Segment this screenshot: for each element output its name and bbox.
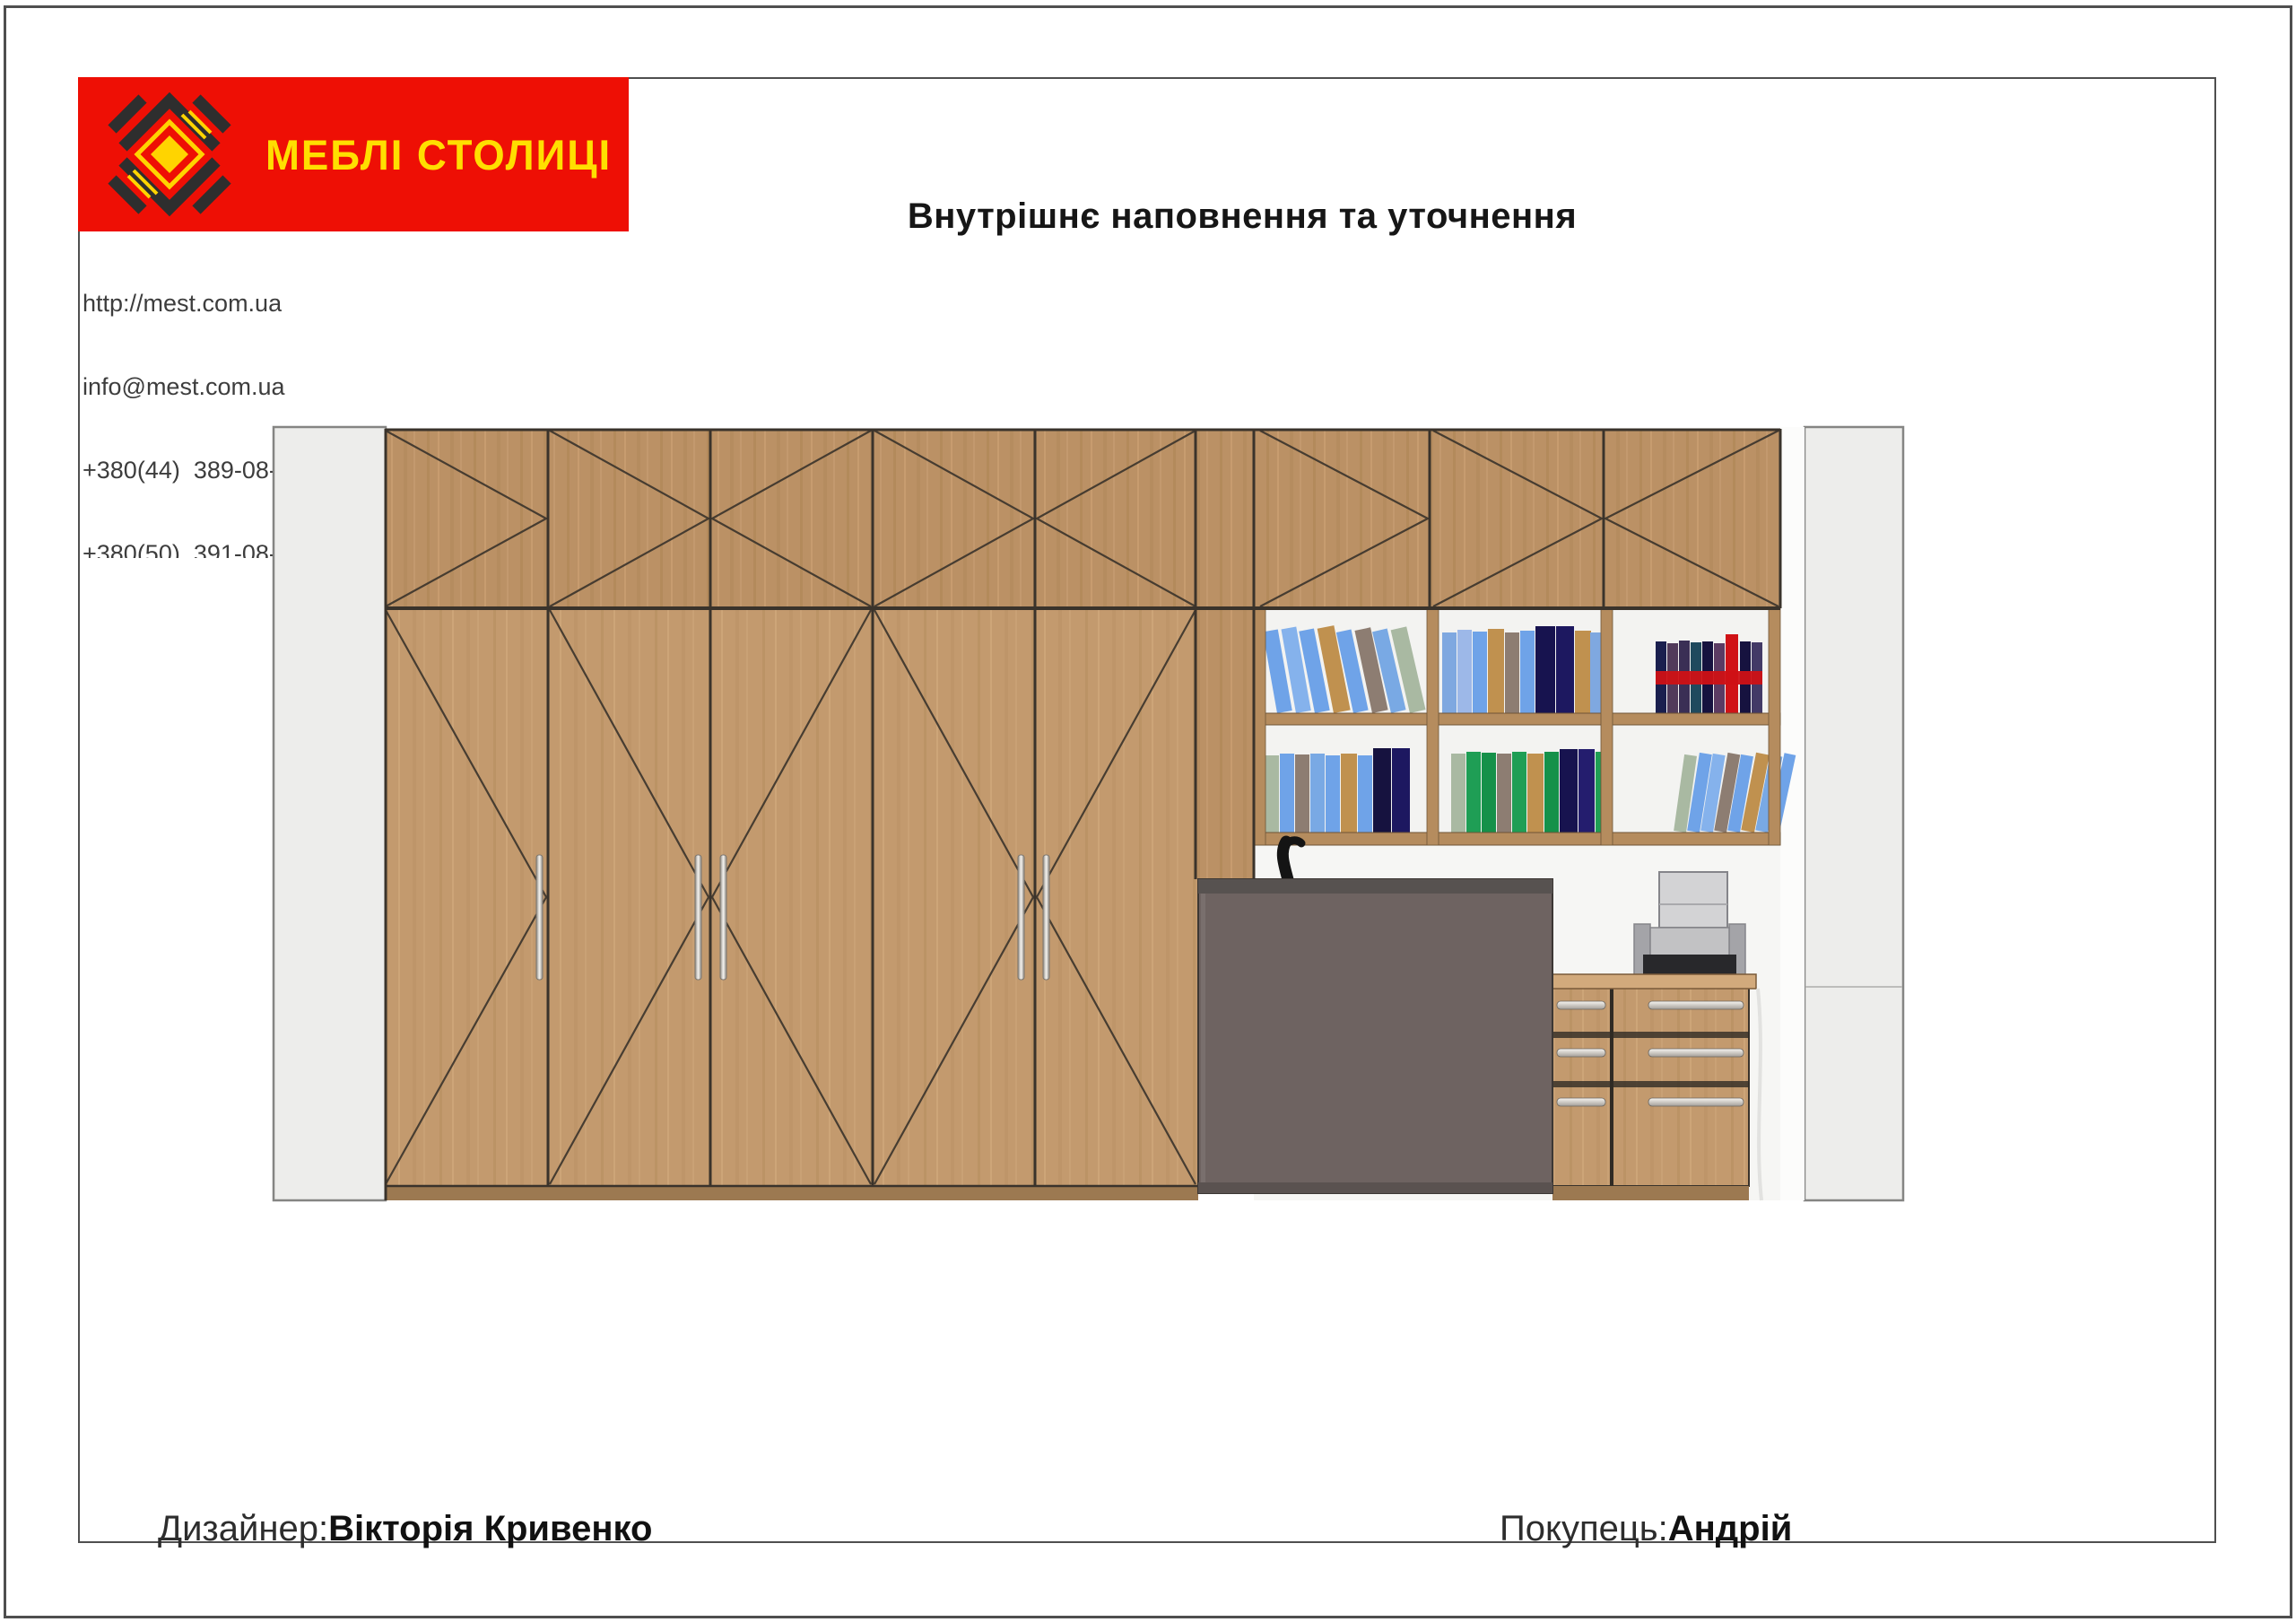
furniture-drawing [0, 0, 2296, 1622]
books-top-middle [1442, 626, 1603, 713]
design-sheet: МЕБЛІ СТОЛИЦІ http://mest.com.ua info@me… [0, 0, 2296, 1622]
designer-field: Дизайнер:Вікторія Кривенко [158, 1509, 652, 1549]
left-side-panel [274, 427, 386, 1200]
buyer-field: Покупець:Андрій [1500, 1509, 1792, 1549]
shelf-board-1 [1254, 713, 1780, 725]
buyer-name: Андрій [1668, 1509, 1793, 1548]
buyer-label: Покупець: [1500, 1509, 1668, 1548]
wall-gap-strip [1780, 427, 1805, 1200]
center-fixed-panel [1196, 608, 1254, 879]
shelf-board-2 [1254, 833, 1780, 845]
books-top-right [1656, 634, 1762, 713]
counter-top [1545, 974, 1756, 989]
right-side-panel [1805, 427, 1903, 1200]
plinth [386, 1186, 1198, 1200]
lower-doors-block [386, 608, 1197, 1186]
books-bottom-left [1265, 748, 1410, 833]
designer-label: Дизайнер: [158, 1509, 328, 1548]
books-bottom-middle [1451, 749, 1608, 833]
drawer-unit [1545, 974, 1761, 1200]
designer-name: Вікторія Кривенко [328, 1509, 652, 1548]
desk [1198, 879, 1552, 1193]
